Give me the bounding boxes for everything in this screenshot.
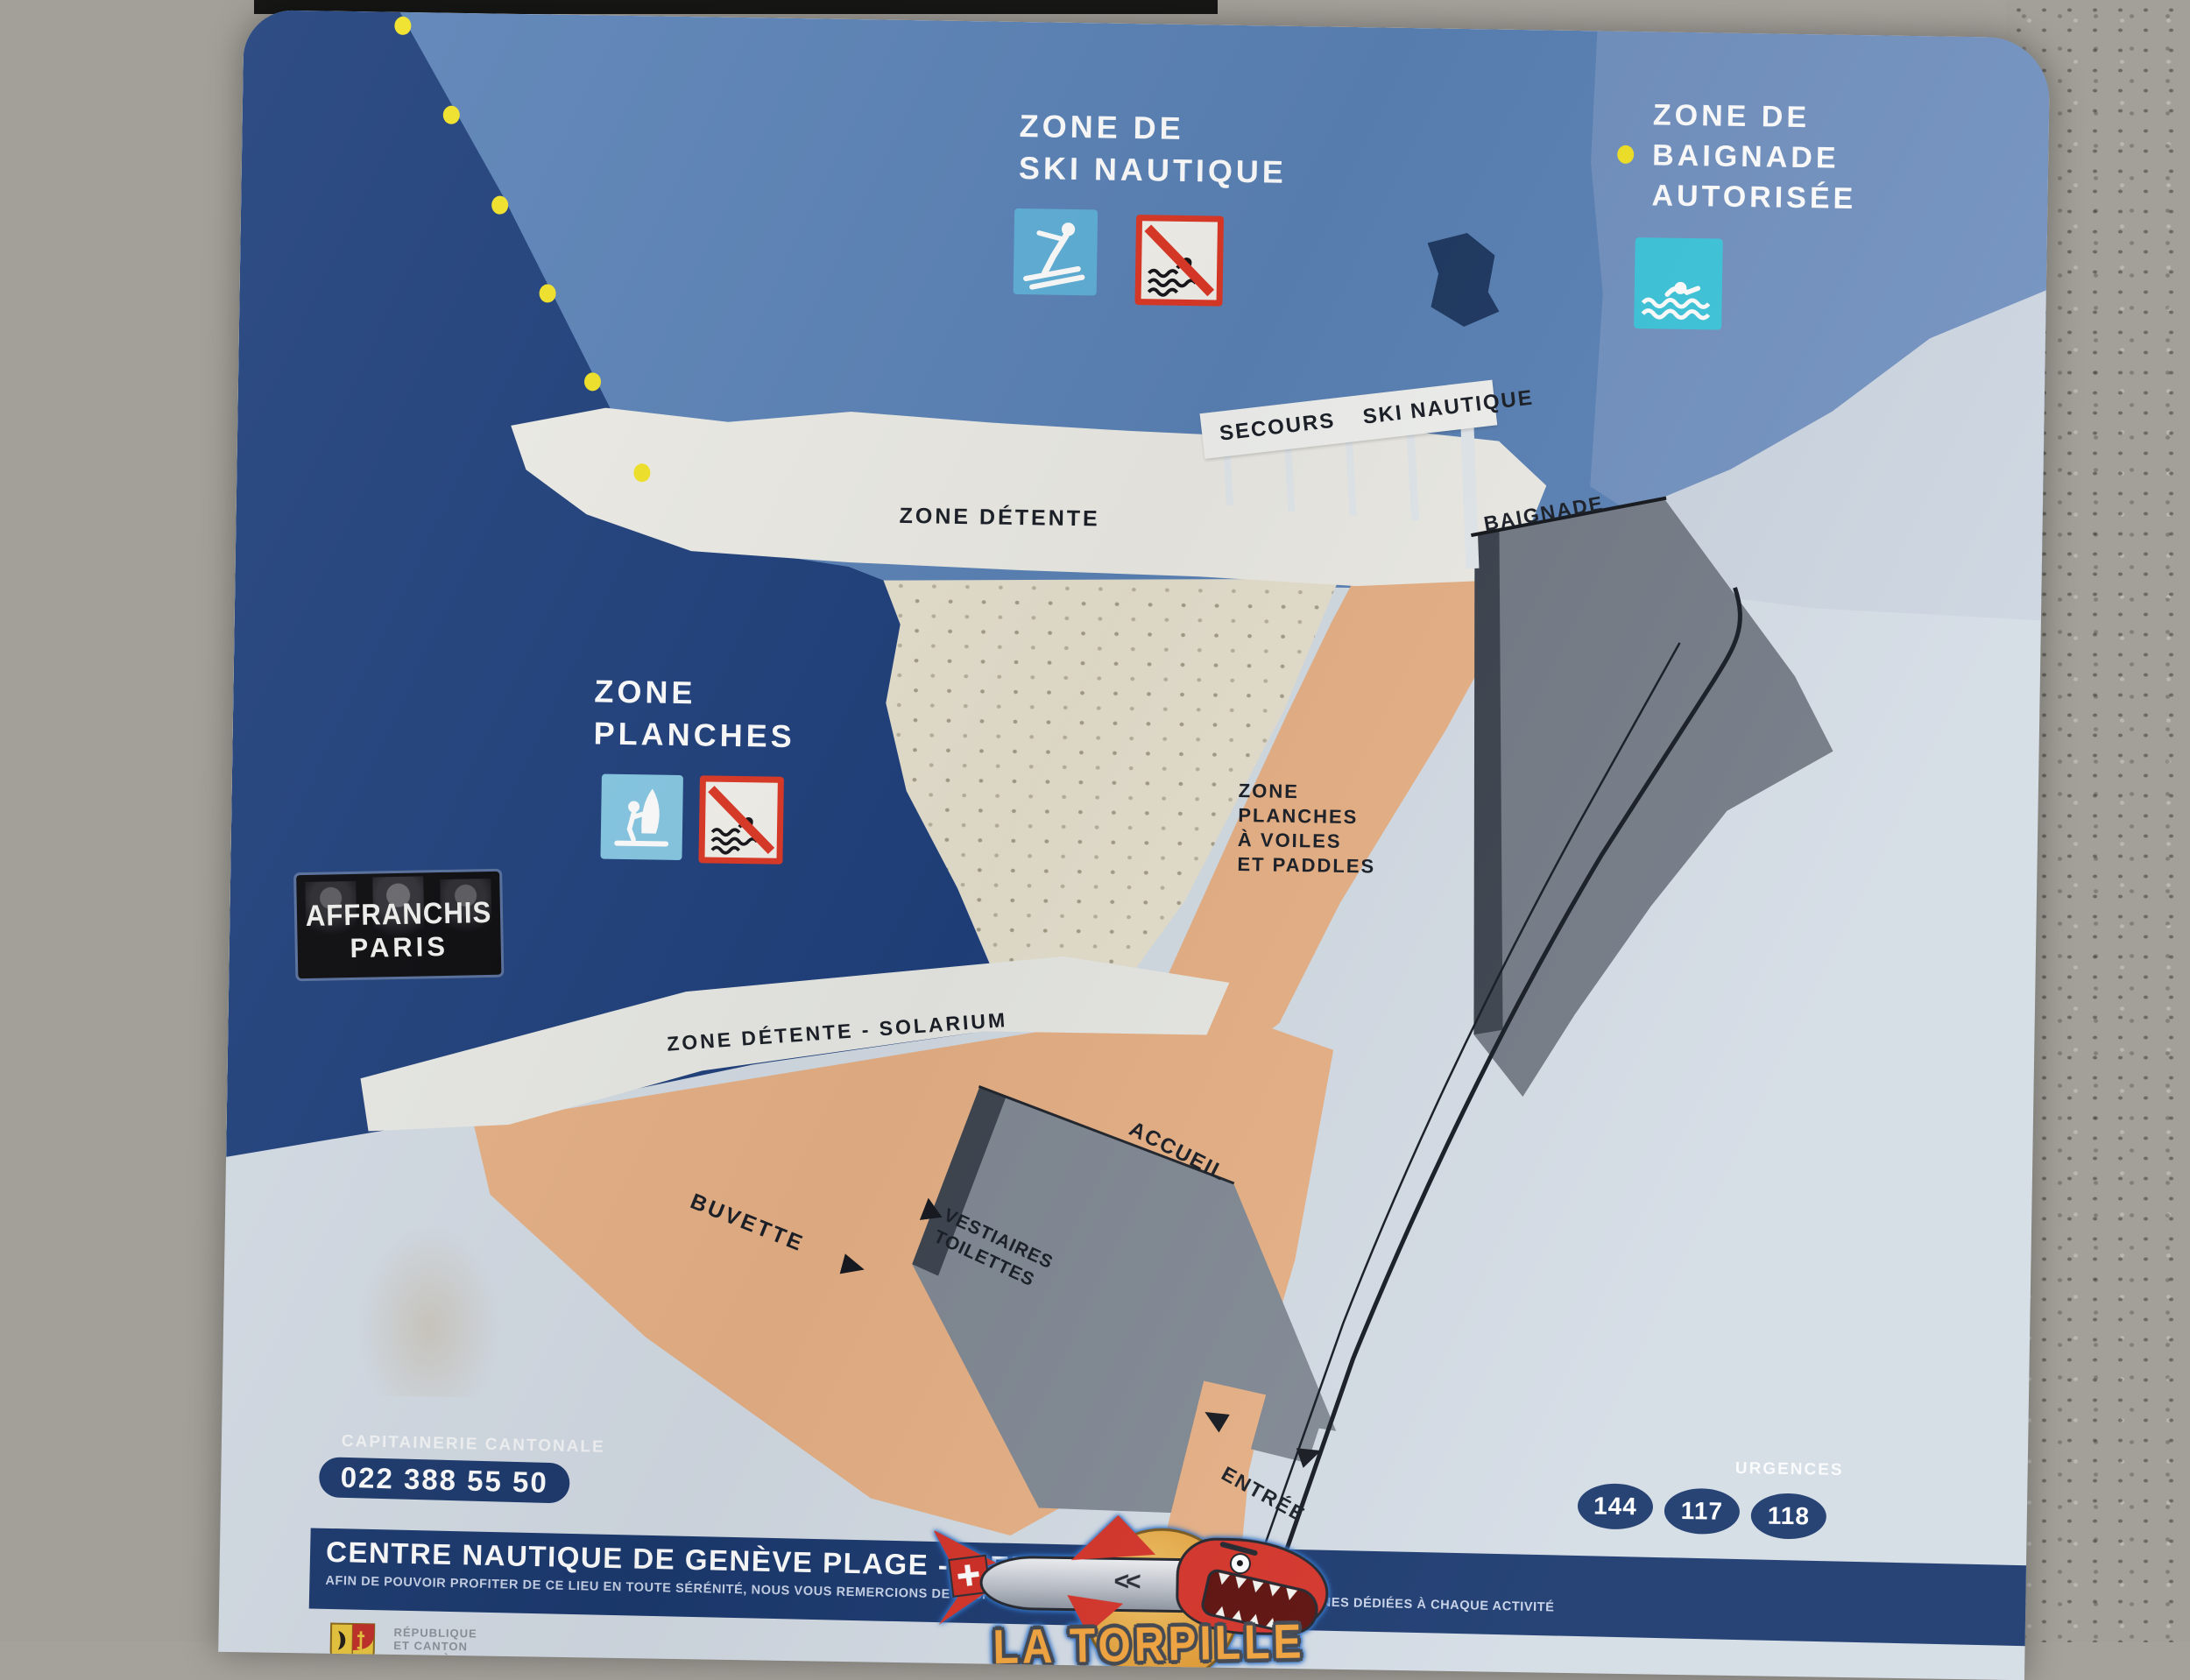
- capitainerie-phone: 022 388 55 50: [340, 1461, 548, 1500]
- zone-baignade-title: ZONE DE BAIGNADE AUTORISÉE: [1651, 95, 1858, 219]
- zone-baignade-title-line2: BAIGNADE: [1652, 135, 1857, 179]
- capitainerie-title: CAPITAINERIE CANTONALE: [342, 1432, 605, 1458]
- urgences-title: URGENCES: [1663, 1458, 1917, 1482]
- urgences-number-144: 144: [1578, 1483, 1654, 1529]
- nautical-center-map-sign: SECOURS SKI NAUTIQUE: [218, 10, 2050, 1680]
- zone-ski-title: ZONE DE SKI NAUTIQUE: [1019, 105, 1288, 194]
- no-swimming-icon: [698, 775, 784, 864]
- urgences-117: 117: [1681, 1497, 1724, 1526]
- zone-baignade-title-line1: ZONE DE: [1653, 95, 1858, 138]
- geneva-coat-of-arms: [328, 1621, 378, 1657]
- handprint-stain: [354, 1220, 505, 1398]
- zone-voiles-line2: PLANCHES: [1238, 803, 1376, 829]
- zone-voiles-label: ZONE PLANCHES À VOILES ET PADDLES: [1237, 779, 1376, 879]
- zone-voiles-line4: ET PADDLES: [1237, 852, 1375, 879]
- canton-line3: DE GENÈVE: [393, 1652, 477, 1666]
- canton-line2: ET CANTON: [393, 1639, 477, 1653]
- zone-planches-title-line1: ZONE: [594, 670, 796, 716]
- urgences-144: 144: [1593, 1492, 1637, 1521]
- water-ski-icon: [1014, 208, 1099, 295]
- watermark-title: LA TORPILLE: [993, 1614, 1305, 1676]
- swimmer-icon: [1634, 237, 1723, 330]
- capitainerie-phone-pill: 022 388 55 50: [319, 1457, 570, 1503]
- zone-voiles-line1: ZONE: [1239, 779, 1377, 805]
- zone-detente-label: ZONE DÉTENTE: [899, 504, 1100, 533]
- canton-line1: RÉPUBLIQUE: [393, 1626, 477, 1640]
- zone-ski-title-line1: ZONE DE: [1019, 105, 1288, 152]
- urgences-number-118: 118: [1750, 1493, 1826, 1539]
- shark-eye: [1230, 1553, 1251, 1574]
- sticker-line1: AFFRANCHIS: [305, 896, 492, 934]
- secours-label: SECOURS: [1201, 407, 1351, 448]
- canton-text: RÉPUBLIQUE ET CANTON DE GENÈVE: [393, 1626, 477, 1666]
- zone-voiles-line3: À VOILES: [1238, 828, 1376, 854]
- windsurf-icon: [600, 774, 683, 860]
- sticker-line2: PARIS: [297, 930, 501, 965]
- urgences-118: 118: [1767, 1502, 1810, 1531]
- no-swimming-icon: [1134, 215, 1224, 307]
- zone-baignade-title-line3: AUTORISÉE: [1651, 175, 1856, 219]
- zone-planches-title: ZONE PLANCHES: [593, 670, 796, 758]
- affranchis-paris-sticker: AFFRANCHIS PARIS: [296, 872, 501, 978]
- zone-planches-title-line2: PLANCHES: [593, 712, 795, 758]
- zone-ski-title-line2: SKI NAUTIQUE: [1019, 147, 1288, 194]
- shark-torpedo-logo: << ▼▼▼▼▼ ▲▲▲▲ LA TORPILLE: [912, 1505, 1388, 1674]
- urgences-number-117: 117: [1664, 1488, 1741, 1535]
